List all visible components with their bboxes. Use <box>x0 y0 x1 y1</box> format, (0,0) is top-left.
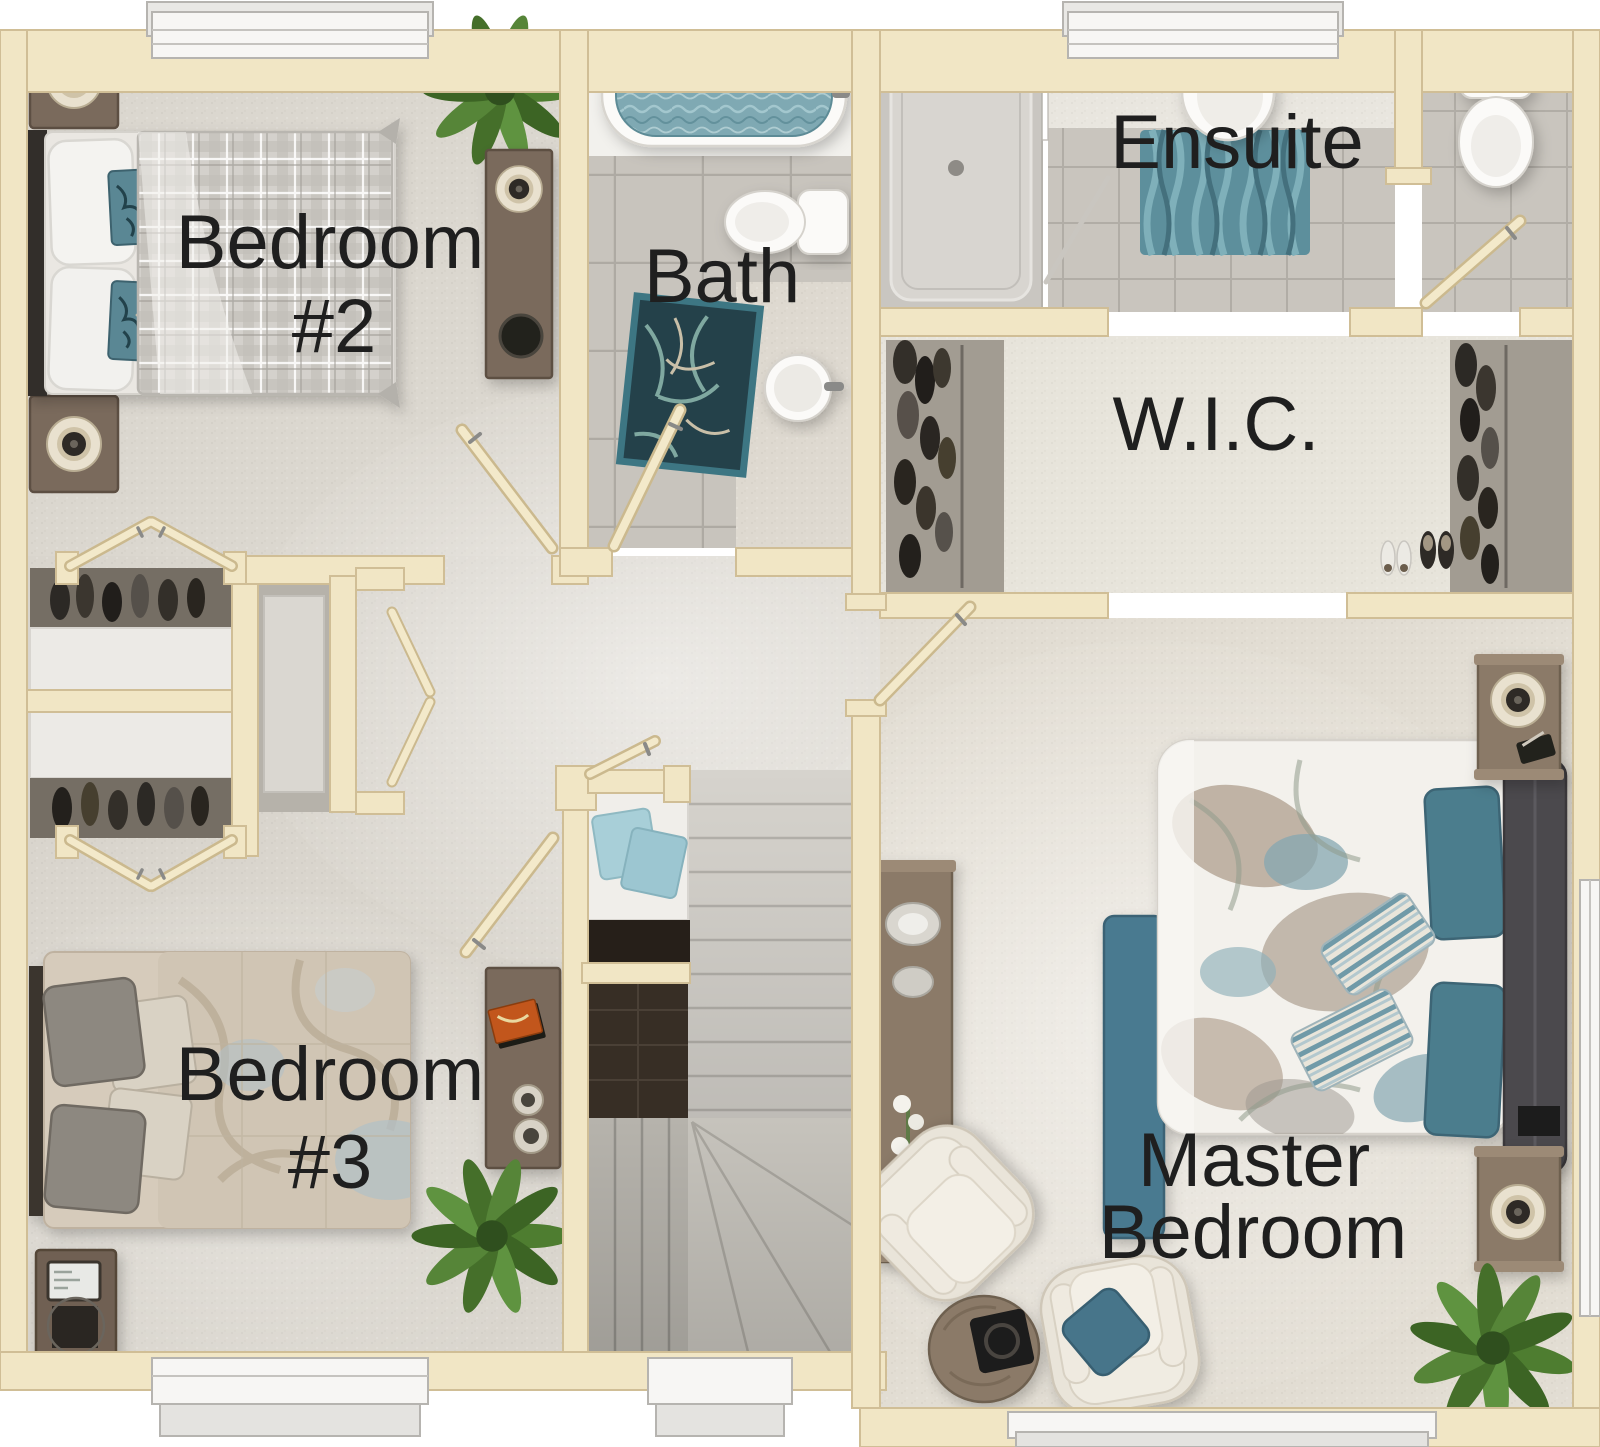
closet2-shelf <box>30 628 232 690</box>
console-plate-2-icon <box>893 967 933 997</box>
label-ensuite: Ensuite <box>1110 100 1364 185</box>
linen-closet-shelf <box>264 596 324 792</box>
master-headboard-foot <box>1518 1106 1560 1136</box>
master-teal-pillow-2 <box>1424 982 1506 1138</box>
wall-center-vertical-lower <box>852 705 880 1408</box>
label-bedroom2-line1: Bedroom <box>176 200 484 285</box>
bedroom3-desk <box>486 968 560 1168</box>
bedroom3-gray-pillow-1 <box>42 977 146 1087</box>
staircase <box>582 770 852 1352</box>
shower-drain-icon <box>948 160 964 176</box>
bedroom3-speaker-icon <box>52 1306 98 1348</box>
master-teal-pillow-1 <box>1424 786 1506 940</box>
floor-plan-canvas: Bedroom #2 Bath Ensuite W.I.C. Bedroom #… <box>0 0 1600 1447</box>
stairs-lower-shading <box>588 1118 852 1352</box>
master-lamp-top-icon <box>1491 673 1545 727</box>
label-bedroom2-line2: #2 <box>292 284 377 369</box>
master-coffee-table <box>929 1296 1039 1402</box>
stair-dark-shelf <box>582 920 690 963</box>
label-bedroom3-line1: Bedroom <box>176 1032 484 1117</box>
window-master-bottom <box>1008 1412 1436 1447</box>
wall-linen-nub-bottom <box>356 792 404 814</box>
floor-plan: Bedroom #2 Bath Ensuite W.I.C. Bedroom #… <box>0 0 1600 1447</box>
label-bedroom3-line2: #3 <box>288 1120 373 1205</box>
wall-left <box>0 30 27 1390</box>
wall-closet-divider <box>27 690 232 712</box>
bath-sink-faucet-icon <box>824 382 844 391</box>
wall-ensuite-nook-nub <box>1386 168 1431 184</box>
bedroom2-lamp-bottom-icon <box>47 417 101 471</box>
closet3-shelf <box>30 712 232 778</box>
master-lamp-bottom-icon <box>1491 1185 1545 1239</box>
bedroom2-dresser-lamp-icon <box>496 166 542 212</box>
bedroom2-dresser-bowl-icon <box>500 315 542 357</box>
wall-center-vertical-upper <box>852 30 880 610</box>
wall-linen-nub-top <box>356 568 404 590</box>
window-bedroom2-top <box>147 2 433 58</box>
wall-bath-bottom-left <box>560 548 612 576</box>
master-nightstand-bottom <box>1474 1146 1564 1272</box>
wall-bedroom2-bath <box>560 30 588 556</box>
bath-rug <box>620 296 761 474</box>
wall-linen-closet <box>330 576 356 812</box>
wall-wic-top-left <box>880 308 1108 336</box>
wall-stairwell-band <box>582 963 690 983</box>
stairs-post-right <box>664 766 690 802</box>
label-bath: Bath <box>644 234 800 319</box>
wall-closet-right <box>232 584 258 856</box>
wic-rail-right <box>1450 340 1573 592</box>
master-nightstand-top <box>1474 654 1564 780</box>
bedroom2-dresser <box>486 150 552 378</box>
bedroom3-gray-pillow-2 <box>44 1104 147 1214</box>
wall-wic-top-mid <box>1350 308 1422 336</box>
wall-ensuite-toilet-nook <box>1395 30 1422 170</box>
window-ensuite-top <box>1063 2 1343 58</box>
bedroom3-nightstand <box>36 1250 116 1358</box>
label-wic: W.I.C. <box>1113 382 1320 467</box>
wic-rail-left <box>886 340 1004 592</box>
wall-wic-bottom-left <box>880 593 1108 618</box>
master-door-nub-top <box>846 594 886 610</box>
coffee-table-tray-icon <box>969 1308 1035 1374</box>
wall-stairs-left <box>563 770 588 1352</box>
window-bedroom3-bottom <box>152 1358 428 1436</box>
window-master-right <box>1580 880 1600 1316</box>
window-stairs-bottom <box>648 1358 792 1436</box>
stairs-upper-shading <box>688 770 852 1118</box>
label-master-line2: Bedroom <box>1099 1190 1407 1275</box>
wall-wic-top-right <box>1520 308 1573 336</box>
wall-wic-bottom-right <box>1347 593 1573 618</box>
